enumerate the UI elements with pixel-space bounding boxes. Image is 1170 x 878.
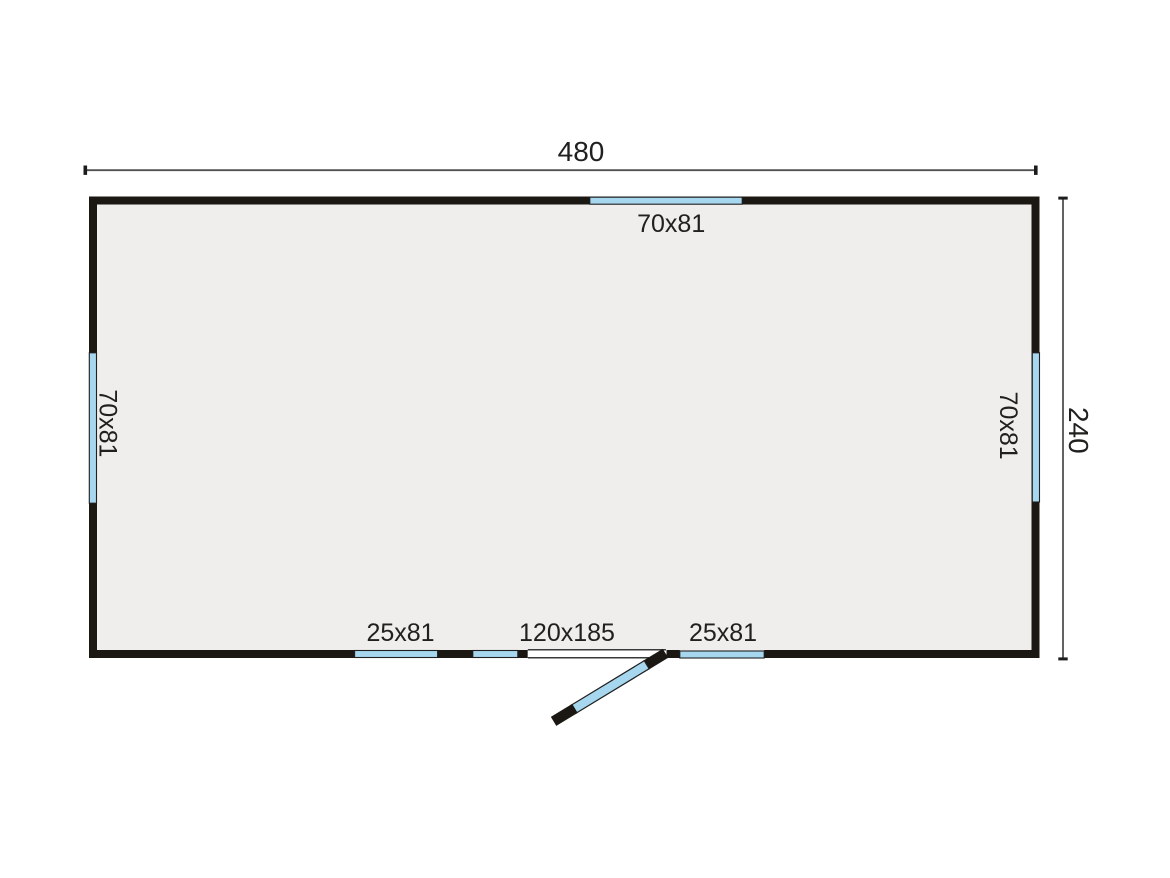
svg-text:70x81: 70x81 — [637, 210, 705, 238]
svg-text:25x81: 25x81 — [366, 619, 434, 647]
svg-text:480: 480 — [558, 136, 605, 167]
svg-text:240: 240 — [1063, 407, 1094, 454]
svg-text:70x81: 70x81 — [994, 392, 1022, 460]
svg-text:25x81: 25x81 — [689, 619, 757, 647]
svg-text:120x185: 120x185 — [519, 619, 615, 647]
svg-text:70x81: 70x81 — [94, 389, 122, 457]
